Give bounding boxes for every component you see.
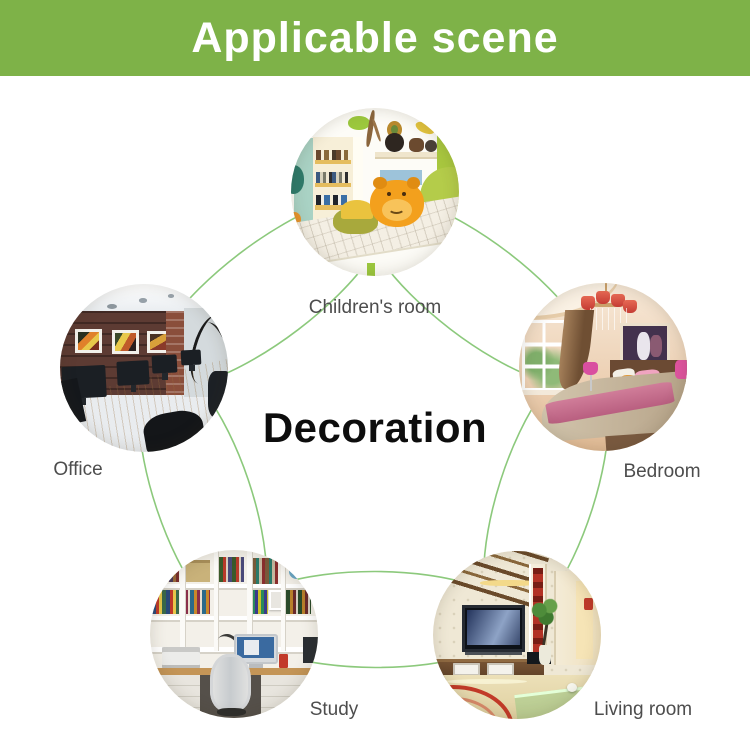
office-photo [60,284,228,452]
study-computer-window [244,640,259,655]
living-ceiling-slats [433,551,549,609]
children-toy [409,138,424,151]
office-brick-column [166,311,184,395]
children-shelf-board [315,205,352,209]
living-floor-sheen [446,679,527,684]
study-books [152,589,179,614]
children-bee-plush [385,133,403,151]
living-tv-base [465,652,522,655]
children-bear-eye [402,192,406,196]
bedroom-lamp-right [675,360,687,378]
bedroom-floor [606,429,687,451]
study-books [286,589,311,614]
children-shelf-board [315,183,352,187]
bedroom-picture-figure [650,335,662,357]
living-tv-screen [467,610,521,645]
office-monitor [61,365,106,399]
children-turtle-hood [341,200,373,218]
children-turtle-plush [333,207,378,234]
center-title: Decoration [263,404,487,452]
study-printer [162,647,201,667]
children-shelf-board [315,160,352,164]
study-photo-frame [269,590,282,610]
page: Applicable scene [0,0,750,750]
living-cove-light [480,580,537,587]
bedroom-chandelier-shade [623,300,636,313]
office-chair [141,407,208,452]
children-wall-badge [387,121,402,138]
bedroom-chandelier-shade [581,296,594,309]
study-books [185,589,210,614]
children-branch-toy-2 [371,118,381,141]
children-branch-toy [365,110,376,147]
office-monitor [117,360,150,385]
office-monitor [152,354,178,374]
scene-label-living-room: Living room [594,699,692,721]
children-bear-muzzle [382,199,412,221]
living-plant-vase [539,645,551,665]
children-wall [294,138,323,222]
study-shelf-board [150,584,318,588]
bedroom-ceiling-cove [519,283,620,320]
study-shelf-divider [214,550,218,651]
bedroom-window [522,320,566,391]
study-computer-screen [237,637,274,657]
scene-office [60,284,228,452]
living-tv [462,605,526,652]
study-desk [150,668,318,676]
scene-living-room [433,551,601,719]
office-monitor-stand [162,373,168,380]
study-shelf-divider [247,550,251,651]
study-computer [234,634,278,664]
office-picture-frame [112,330,139,354]
children-banana-decal [414,119,437,136]
children-shelf-unit [313,137,363,226]
scene-children-room [291,108,459,276]
children-room-photo [291,108,459,276]
office-monitor-stand [189,365,195,372]
living-tv-cabinet [436,659,544,681]
bedroom-picture-figure [637,332,650,361]
bedroom-chandelier-arm [586,303,628,306]
study-books [252,558,277,583]
living-room-photo [433,551,601,719]
bedroom-chandelier-crystals [590,308,630,330]
study-shelf-divider [180,550,184,651]
office-monitor [181,349,202,365]
scene-study [150,550,318,718]
scene-label-office: Office [53,459,102,481]
bedroom-lamp-stand [590,375,593,390]
bedroom-bed-runner [545,381,675,425]
children-shelf-items [316,195,348,206]
living-table-ornament [567,683,577,692]
study-books [152,557,179,582]
study-books [219,557,244,582]
bedroom-wall-picture [620,323,670,367]
living-plant-stem [540,611,550,655]
scene-bedroom [519,283,687,451]
living-plant [530,598,560,625]
study-shelf-board [150,647,318,651]
children-wall-decal [291,165,304,194]
living-rug-border [433,697,500,719]
bedroom-chandelier-stem [605,283,608,298]
bedroom-pillow [658,374,678,387]
study-books [252,589,267,614]
living-wall-decor [584,598,592,610]
children-toy-2 [425,140,437,152]
children-green-panel [437,135,459,180]
bedroom-headboard [610,360,687,384]
scene-label-bedroom: Bedroom [623,461,700,483]
children-shelf-books [316,172,348,183]
office-chair [208,371,228,418]
office-wall-art [184,311,228,387]
children-top-shelf [375,152,449,157]
office-ceiling-light [168,294,175,298]
children-bear-smile [388,202,405,214]
children-headboard [380,170,422,185]
living-hall-light [576,581,593,658]
study-side-screen [303,637,318,662]
bedroom-photo [519,283,687,451]
bedroom-window-sill [519,390,569,395]
study-photo [150,550,318,718]
office-monitor-stand [80,398,86,405]
study-red-cup [279,654,287,667]
bedroom-curtain [557,310,594,389]
living-cabinet-drawer [453,663,480,676]
scene-label-study: Study [310,699,359,721]
bedroom-pillow [620,375,637,387]
living-side-table [527,652,551,664]
study-globe [289,563,304,578]
office-monitor-stand [131,385,137,392]
bedroom-chandelier-shade [596,291,609,304]
office-picture-frame [147,331,171,353]
children-ceiling-decal [348,116,370,129]
living-glass-table [514,683,601,719]
children-bear-eye [387,192,391,196]
children-bed-leg [367,263,375,276]
bedroom-lamp [583,362,598,375]
office-wood-wall [60,311,166,395]
study-chair [210,654,250,711]
scene-label-children-room: Children's room [309,297,441,319]
bedroom-chandelier-shade [611,294,624,307]
living-hallway [554,571,601,665]
living-cabinet-drawer [487,663,514,676]
study-computer-stand [249,664,262,668]
children-bear-ear [407,177,420,189]
bedroom-pillow [612,367,635,383]
office-ceiling-light [139,298,147,302]
study-desk-lamp [212,630,242,660]
living-red-panel [533,568,543,662]
children-shelf-toys [316,150,348,160]
bedroom-pillow [634,369,661,387]
children-bear-plush [370,180,424,227]
study-shelf-divider [281,550,285,651]
office-ceiling [60,284,228,328]
office-ceiling-light [107,304,117,309]
study-storage-box [185,560,210,582]
study-chair-base [217,708,246,716]
study-desk-drawers [150,675,318,718]
living-column [529,564,547,665]
study-shelf-board [150,616,318,620]
children-green-circle [420,167,459,227]
office-monitor-edge [60,378,86,428]
study-desk-well [200,675,260,718]
children-bear-ear [373,177,386,189]
office-picture-frame [75,329,102,353]
